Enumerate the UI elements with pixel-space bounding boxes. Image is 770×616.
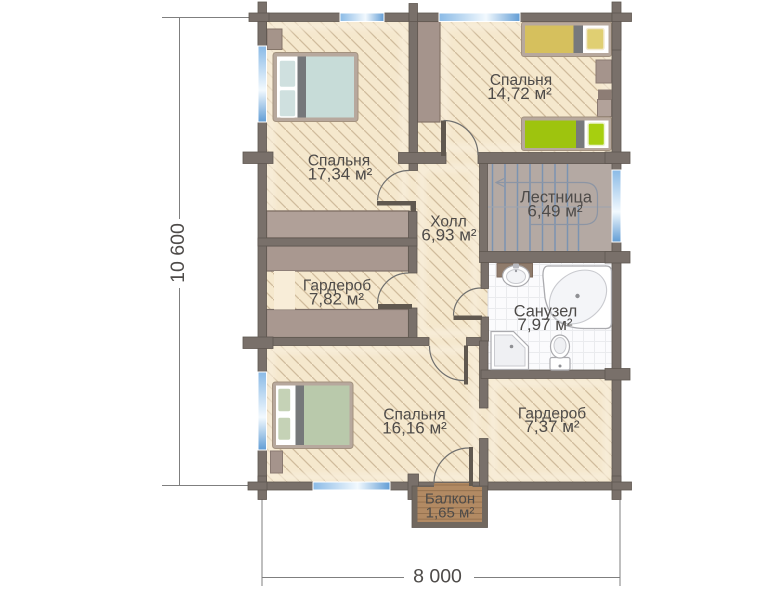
svg-text:14,72 м²: 14,72 м² bbox=[487, 84, 552, 103]
svg-text:1,65 м²: 1,65 м² bbox=[426, 505, 475, 522]
svg-text:6,93 м²: 6,93 м² bbox=[421, 226, 476, 245]
svg-text:7,82 м²: 7,82 м² bbox=[309, 290, 364, 309]
svg-text:16,16 м²: 16,16 м² bbox=[382, 419, 447, 438]
svg-text:7,37 м²: 7,37 м² bbox=[524, 417, 579, 436]
svg-text:17,34 м²: 17,34 м² bbox=[308, 165, 373, 184]
svg-text:10 600: 10 600 bbox=[167, 223, 189, 283]
svg-text:6,49 м²: 6,49 м² bbox=[527, 202, 582, 221]
svg-text:8 000: 8 000 bbox=[413, 566, 462, 588]
svg-text:7,97 м²: 7,97 м² bbox=[517, 315, 572, 334]
